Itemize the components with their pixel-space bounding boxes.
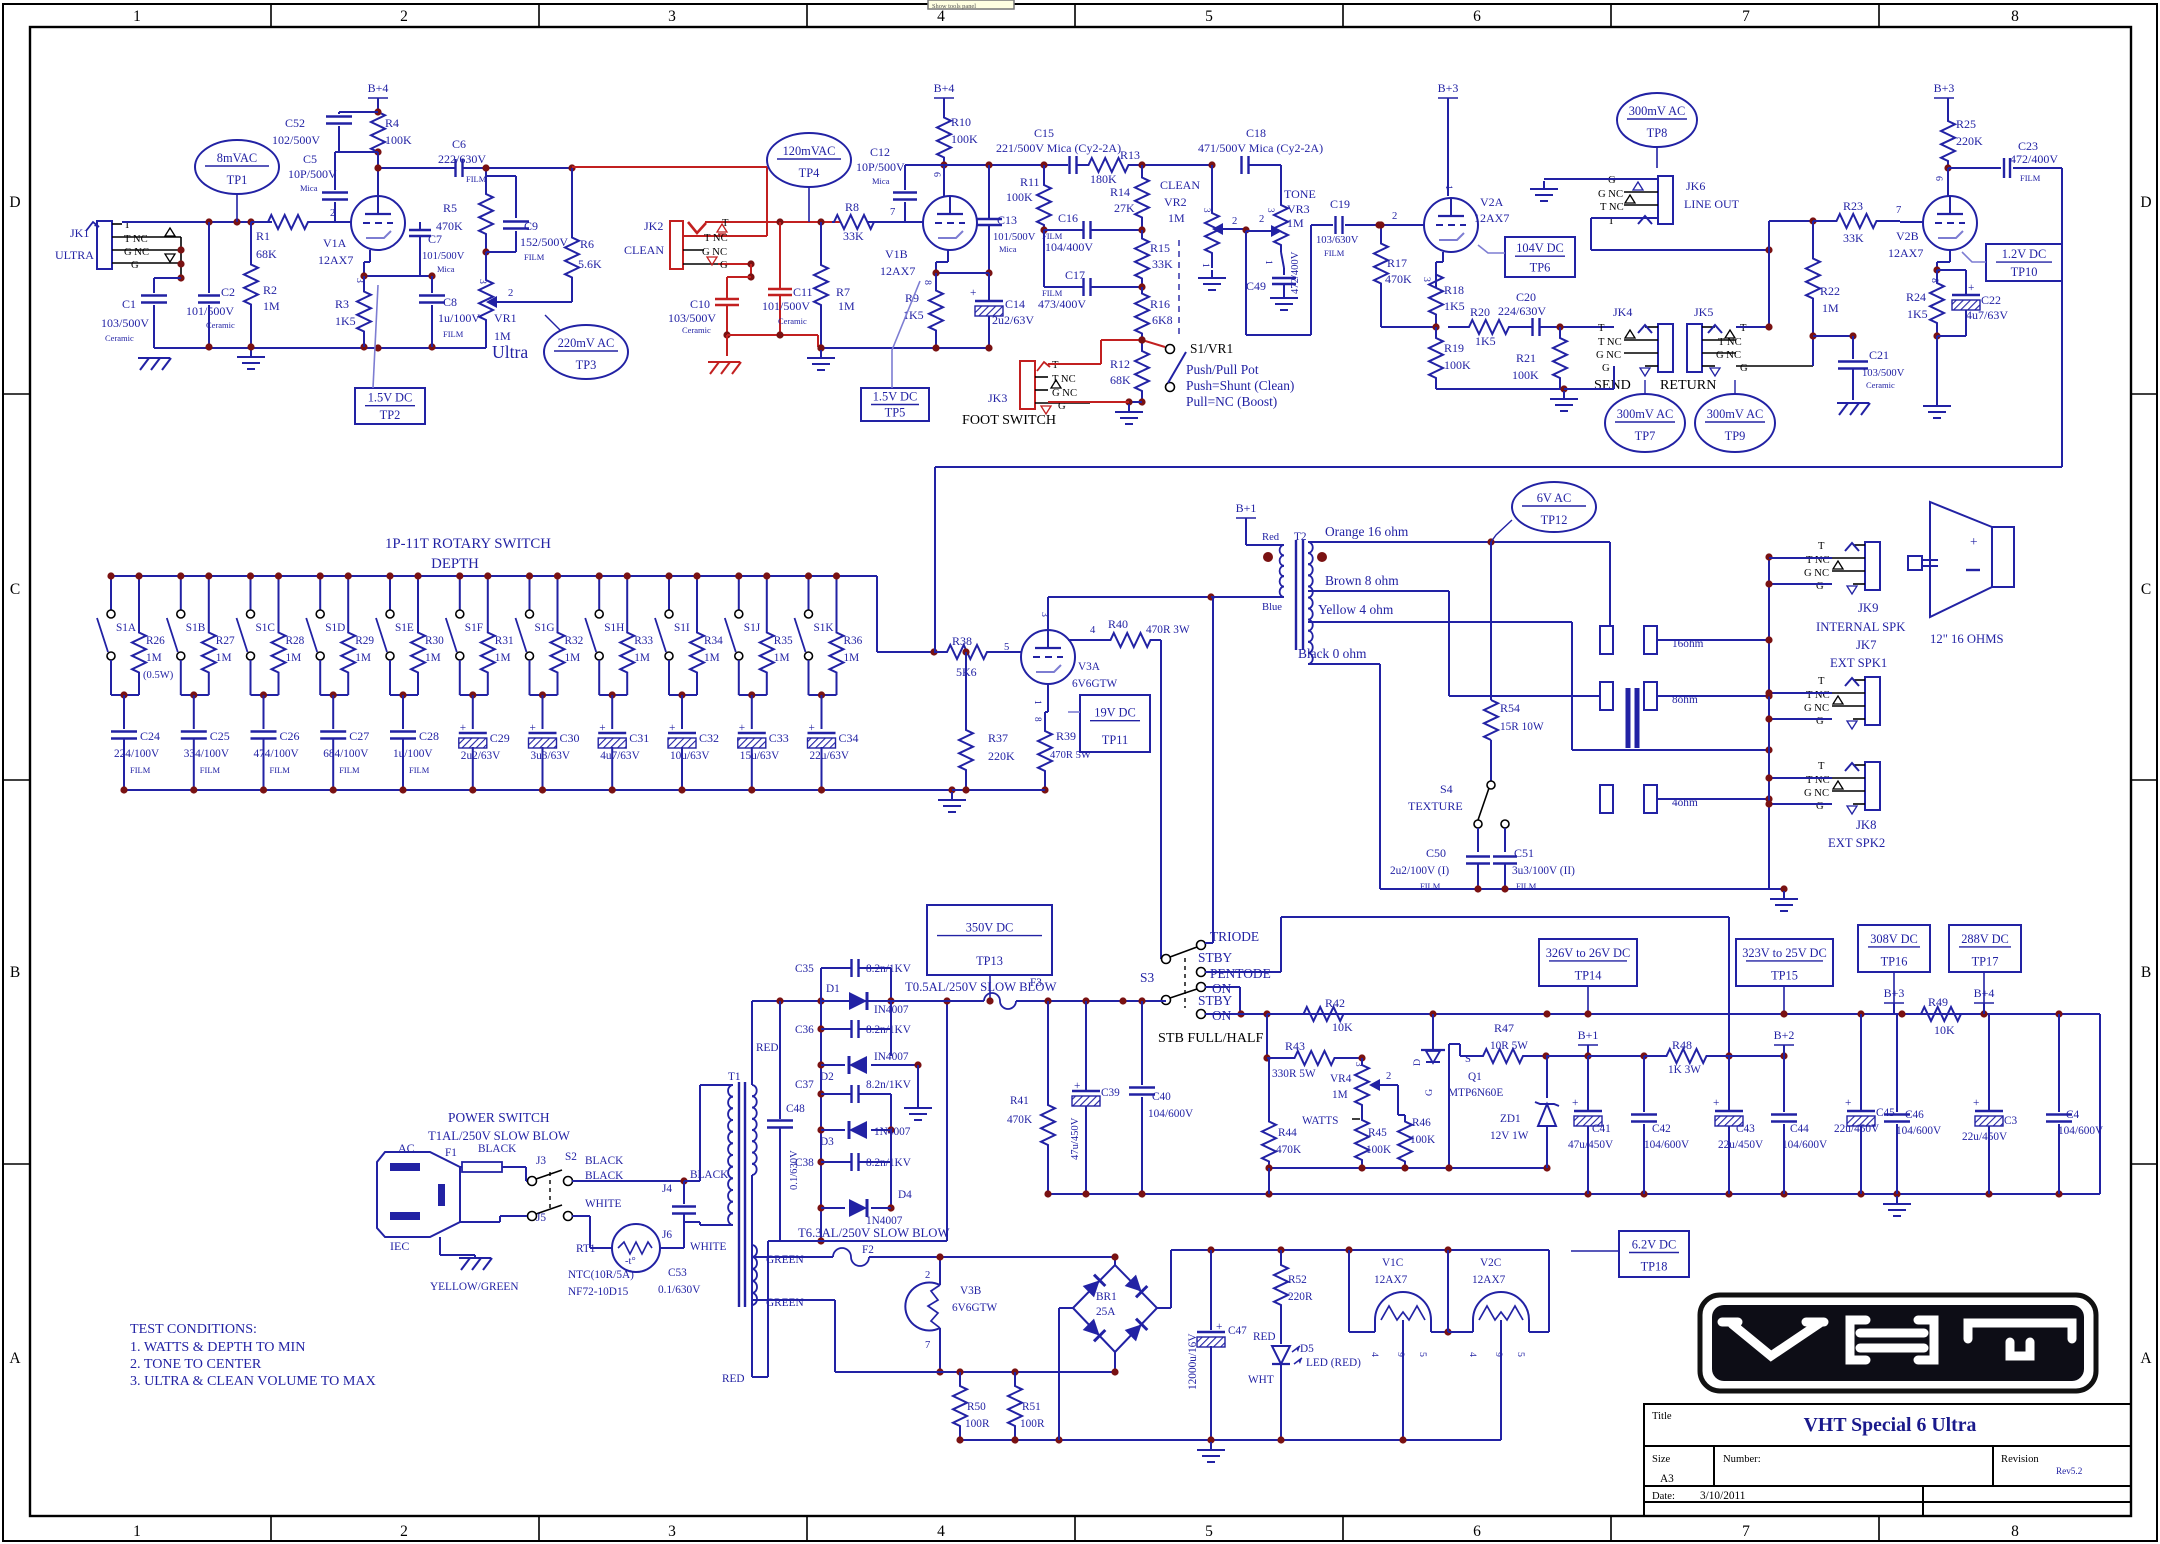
- svg-text:R36: R36: [844, 635, 863, 647]
- svg-text:TP14: TP14: [1575, 968, 1602, 982]
- svg-text:S1H: S1H: [604, 622, 624, 634]
- svg-text:R37: R37: [988, 731, 1008, 745]
- svg-text:IEC: IEC: [390, 1239, 409, 1253]
- svg-text:3: 3: [668, 1523, 676, 1540]
- svg-text:Revision: Revision: [2001, 1454, 2039, 1465]
- svg-text:R43: R43: [1285, 1039, 1305, 1053]
- svg-text:101/500V: 101/500V: [762, 299, 810, 313]
- svg-text:V1A: V1A: [323, 236, 347, 250]
- svg-text:10K: 10K: [1934, 1023, 1955, 1037]
- svg-text:C35: C35: [795, 963, 814, 975]
- svg-text:FILM: FILM: [443, 329, 464, 339]
- svg-text:R31: R31: [495, 635, 514, 647]
- svg-text:C17: C17: [1065, 268, 1085, 282]
- svg-text:C43: C43: [1736, 1123, 1755, 1135]
- svg-text:C40: C40: [1152, 1091, 1171, 1103]
- svg-text:RED: RED: [1253, 1331, 1276, 1343]
- svg-text:+: +: [1973, 1097, 1979, 1109]
- svg-text:2. TONE TO CENTER: 2. TONE TO CENTER: [130, 1356, 262, 1372]
- svg-text:288V DC: 288V DC: [1961, 932, 2009, 946]
- svg-text:B: B: [10, 964, 20, 981]
- svg-text:16ohm: 16ohm: [1672, 638, 1704, 650]
- svg-text:TP12: TP12: [1541, 513, 1568, 527]
- svg-text:LED (RED): LED (RED): [1306, 1357, 1361, 1369]
- svg-text:1: 1: [1201, 263, 1211, 268]
- svg-text:EXT SPK1: EXT SPK1: [1830, 656, 1887, 670]
- svg-text:G: G: [720, 260, 728, 271]
- svg-text:C25: C25: [210, 729, 230, 743]
- svg-text:R20: R20: [1470, 305, 1490, 319]
- svg-text:Push=Shunt (Clean): Push=Shunt (Clean): [1186, 378, 1294, 393]
- svg-text:T: T: [1818, 761, 1825, 772]
- svg-text:R16: R16: [1150, 297, 1170, 311]
- svg-text:103/500V: 103/500V: [101, 316, 149, 330]
- svg-text:Push/Pull Pot: Push/Pull Pot: [1186, 362, 1259, 377]
- svg-text:5: 5: [1205, 8, 1213, 25]
- svg-text:25A: 25A: [1096, 1306, 1116, 1318]
- svg-text:R22: R22: [1820, 284, 1840, 298]
- svg-text:T NC: T NC: [704, 233, 728, 244]
- svg-text:G NC: G NC: [1598, 189, 1623, 200]
- svg-text:G: G: [1608, 175, 1616, 186]
- svg-text:Pull=NC (Boost): Pull=NC (Boost): [1186, 394, 1277, 409]
- svg-text:C8: C8: [443, 295, 457, 309]
- svg-text:A: A: [9, 1350, 21, 1367]
- svg-text:103/630V: 103/630V: [1316, 235, 1359, 246]
- svg-text:6V AC: 6V AC: [1537, 491, 1572, 505]
- svg-text:S1I: S1I: [674, 622, 690, 634]
- svg-text:3: 3: [1266, 208, 1276, 213]
- svg-text:RT1: RT1: [576, 1243, 595, 1255]
- svg-text:WHT: WHT: [1248, 1374, 1274, 1386]
- svg-text:F3: F3: [1030, 977, 1042, 989]
- svg-text:C31: C31: [629, 731, 649, 745]
- svg-text:STB FULL/HALF: STB FULL/HALF: [1158, 1030, 1263, 1046]
- svg-text:1P-11T ROTARY SWITCH: 1P-11T ROTARY SWITCH: [385, 536, 551, 552]
- svg-text:B+4: B+4: [934, 81, 955, 95]
- svg-text:FILM: FILM: [2020, 173, 2041, 183]
- svg-text:12" 16 OHMS: 12" 16 OHMS: [1930, 632, 2004, 646]
- svg-text:68K: 68K: [256, 247, 277, 261]
- svg-text:6K8: 6K8: [1152, 313, 1173, 327]
- svg-text:R33: R33: [634, 635, 653, 647]
- svg-text:SEND: SEND: [1594, 377, 1631, 393]
- svg-text:27K: 27K: [1114, 201, 1135, 215]
- svg-text:101/500V: 101/500V: [422, 251, 465, 262]
- svg-text:G NC: G NC: [1052, 388, 1077, 399]
- svg-text:JK9: JK9: [1858, 601, 1878, 615]
- svg-text:C26: C26: [280, 729, 300, 743]
- svg-text:2: 2: [925, 1270, 930, 1281]
- svg-text:EXT SPK2: EXT SPK2: [1828, 836, 1885, 850]
- svg-text:1K 3W: 1K 3W: [1668, 1064, 1701, 1076]
- svg-text:471/500V Mica (Cy2-2A): 471/500V Mica (Cy2-2A): [1198, 141, 1323, 155]
- svg-text:1K5: 1K5: [1907, 307, 1928, 321]
- svg-text:5: 5: [1515, 1352, 1526, 1357]
- svg-text:ON: ON: [1212, 1008, 1232, 1023]
- svg-text:104/400V: 104/400V: [1045, 240, 1093, 254]
- svg-text:R3: R3: [335, 297, 349, 311]
- svg-text:C30: C30: [560, 731, 580, 745]
- svg-text:102/500V: 102/500V: [272, 133, 320, 147]
- svg-text:FILM: FILM: [200, 765, 221, 775]
- svg-text:C36: C36: [795, 1024, 814, 1036]
- svg-text:C41: C41: [1592, 1123, 1611, 1135]
- svg-text:C39: C39: [1101, 1087, 1120, 1099]
- svg-text:3: 3: [1354, 1062, 1364, 1067]
- svg-text:+: +: [1968, 282, 1974, 294]
- svg-text:D3: D3: [820, 1136, 834, 1148]
- svg-text:1M: 1M: [146, 652, 162, 664]
- svg-text:1: 1: [133, 1523, 141, 1540]
- svg-text:T: T: [1818, 541, 1825, 552]
- svg-text:Title: Title: [1652, 1411, 1672, 1422]
- svg-text:R17: R17: [1387, 256, 1407, 270]
- svg-text:FILM: FILM: [524, 252, 545, 262]
- svg-text:DEPTH: DEPTH: [431, 556, 479, 572]
- svg-text:10R 5W: 10R 5W: [1490, 1040, 1528, 1052]
- svg-text:C51: C51: [1514, 846, 1534, 860]
- svg-text:RETURN: RETURN: [1660, 377, 1716, 393]
- svg-text:472/400V: 472/400V: [2010, 152, 2058, 166]
- svg-text:180K: 180K: [1090, 172, 1117, 186]
- svg-text:D: D: [2140, 194, 2151, 211]
- svg-text:47u/450V: 47u/450V: [1568, 1139, 1614, 1151]
- svg-text:9: 9: [1395, 1352, 1406, 1357]
- svg-text:G NC: G NC: [124, 247, 149, 258]
- svg-text:V2A: V2A: [1480, 195, 1504, 209]
- svg-text:2: 2: [400, 8, 408, 25]
- svg-text:C24: C24: [140, 729, 160, 743]
- svg-text:Mica: Mica: [437, 264, 455, 274]
- svg-text:POWER SWITCH: POWER SWITCH: [448, 1110, 550, 1125]
- svg-text:+: +: [599, 722, 605, 734]
- svg-text:Black 0 ohm: Black 0 ohm: [1298, 646, 1367, 661]
- svg-text:100R: 100R: [1020, 1418, 1045, 1430]
- svg-text:C47: C47: [1228, 1325, 1247, 1337]
- svg-text:T: T: [1598, 323, 1605, 334]
- svg-text:8: 8: [2011, 8, 2019, 25]
- svg-text:S4: S4: [1440, 782, 1453, 796]
- svg-text:1: 1: [133, 8, 141, 25]
- svg-text:Ceramic: Ceramic: [1866, 380, 1895, 390]
- svg-text:S1D: S1D: [325, 622, 345, 634]
- svg-text:C52: C52: [285, 116, 305, 130]
- svg-text:Ceramic: Ceramic: [206, 320, 235, 330]
- svg-text:1K5: 1K5: [1475, 334, 1496, 348]
- svg-text:2: 2: [1386, 1071, 1391, 1082]
- svg-text:R25: R25: [1956, 117, 1976, 131]
- svg-text:1M: 1M: [1332, 1089, 1348, 1101]
- svg-text:T NC: T NC: [1598, 337, 1622, 348]
- svg-text:C18: C18: [1246, 126, 1266, 140]
- svg-text:R10: R10: [951, 115, 971, 129]
- svg-text:1. WATTS & DEPTH TO MIN: 1. WATTS & DEPTH TO MIN: [130, 1339, 305, 1355]
- svg-text:1M: 1M: [1287, 216, 1304, 230]
- svg-text:8: 8: [922, 280, 933, 285]
- svg-text:T: T: [722, 218, 729, 229]
- svg-text:D4: D4: [898, 1189, 912, 1201]
- svg-text:1: 1: [1264, 260, 1274, 265]
- svg-text:R45: R45: [1368, 1127, 1387, 1139]
- svg-text:15R 10W: 15R 10W: [1500, 721, 1544, 733]
- svg-text:470K: 470K: [1276, 1144, 1302, 1156]
- svg-text:R42: R42: [1325, 996, 1345, 1010]
- svg-text:Number:: Number:: [1723, 1454, 1761, 1465]
- svg-text:6: 6: [1473, 8, 1481, 25]
- svg-text:1u/100V: 1u/100V: [393, 748, 433, 760]
- svg-text:R51: R51: [1022, 1401, 1041, 1413]
- svg-text:100K: 100K: [1006, 190, 1033, 204]
- svg-text:2u2/63V: 2u2/63V: [992, 313, 1034, 327]
- svg-text:V2B: V2B: [1896, 229, 1919, 243]
- svg-text:1M: 1M: [355, 652, 371, 664]
- svg-text:INTERNAL SPK: INTERNAL SPK: [1816, 620, 1906, 634]
- svg-text:4: 4: [937, 8, 945, 25]
- svg-text:1M: 1M: [216, 652, 232, 664]
- svg-text:300mV AC: 300mV AC: [1629, 104, 1686, 118]
- svg-text:C42: C42: [1652, 1123, 1671, 1135]
- svg-text:C11: C11: [793, 285, 813, 299]
- svg-text:220K: 220K: [988, 749, 1015, 763]
- svg-text:F2: F2: [862, 1244, 874, 1256]
- svg-text:TP6: TP6: [1530, 260, 1551, 274]
- svg-text:221/500V Mica (Cy2-2A): 221/500V Mica (Cy2-2A): [996, 141, 1121, 155]
- svg-text:300mV AC: 300mV AC: [1617, 407, 1674, 421]
- svg-text:5: 5: [1205, 1523, 1213, 1540]
- svg-text:T NC: T NC: [1600, 202, 1624, 213]
- svg-text:CLEAN: CLEAN: [624, 243, 664, 257]
- svg-text:IN4007: IN4007: [874, 1051, 909, 1063]
- svg-text:S1K: S1K: [814, 622, 835, 634]
- svg-text:470R 3W: 470R 3W: [1146, 624, 1190, 636]
- svg-text:Blue: Blue: [1262, 602, 1282, 613]
- svg-text:3u3/100V (II): 3u3/100V (II): [1512, 865, 1575, 877]
- svg-text:GREEN: GREEN: [766, 1254, 804, 1266]
- svg-text:J4: J4: [662, 1183, 672, 1195]
- svg-text:G NC: G NC: [1716, 350, 1741, 361]
- svg-text:2u2/100V (I): 2u2/100V (I): [1390, 865, 1449, 877]
- svg-text:C5: C5: [303, 152, 317, 166]
- svg-text:R15: R15: [1150, 241, 1170, 255]
- svg-text:C45: C45: [1876, 1107, 1895, 1119]
- svg-text:1.2V DC: 1.2V DC: [2002, 247, 2047, 261]
- svg-text:3: 3: [1202, 208, 1212, 213]
- svg-text:TP13: TP13: [976, 954, 1003, 968]
- svg-text:WHITE: WHITE: [585, 1198, 621, 1210]
- svg-text:BLACK: BLACK: [690, 1169, 729, 1181]
- svg-text:B+3: B+3: [1438, 81, 1459, 95]
- svg-text:+: +: [809, 722, 815, 734]
- svg-text:0.1/630V: 0.1/630V: [789, 1150, 800, 1190]
- svg-text:C33: C33: [769, 731, 789, 745]
- svg-text:FOOT SWITCH: FOOT SWITCH: [962, 412, 1056, 428]
- svg-text:R46: R46: [1412, 1117, 1431, 1129]
- svg-text:2: 2: [400, 1523, 408, 1540]
- svg-text:1.5V DC: 1.5V DC: [873, 390, 918, 404]
- svg-text:R38: R38: [952, 634, 972, 648]
- svg-text:220mV AC: 220mV AC: [558, 336, 615, 350]
- svg-text:10P/500V: 10P/500V: [288, 167, 337, 181]
- svg-text:G NC: G NC: [1804, 703, 1829, 714]
- svg-text:C2: C2: [221, 285, 235, 299]
- svg-text:8: 8: [1033, 717, 1043, 722]
- svg-text:100R: 100R: [965, 1418, 990, 1430]
- svg-text:TP10: TP10: [2011, 265, 2038, 279]
- svg-text:12AX7: 12AX7: [1888, 246, 1923, 260]
- svg-text:Brown 8 ohm: Brown 8 ohm: [1325, 573, 1399, 588]
- svg-text:+: +: [1572, 1097, 1578, 1109]
- svg-text:R9: R9: [905, 291, 919, 305]
- svg-text:6.2V DC: 6.2V DC: [1632, 1238, 1677, 1252]
- svg-text:2: 2: [1259, 214, 1264, 225]
- svg-text:2: 2: [330, 208, 335, 219]
- svg-text:8: 8: [2011, 1523, 2019, 1540]
- svg-text:FILM: FILM: [466, 174, 487, 184]
- svg-text:R27: R27: [216, 635, 235, 647]
- svg-text:S2: S2: [565, 1151, 577, 1163]
- svg-text:6: 6: [1933, 176, 1944, 181]
- svg-text:8mVAC: 8mVAC: [217, 151, 257, 165]
- svg-text:1M: 1M: [565, 652, 581, 664]
- svg-text:Ultra: Ultra: [492, 342, 528, 362]
- svg-text:Mica: Mica: [872, 176, 890, 186]
- svg-text:TP5: TP5: [885, 405, 906, 419]
- svg-text:C49: C49: [1246, 279, 1266, 293]
- svg-text:FILM: FILM: [1324, 248, 1345, 258]
- svg-text:+: +: [970, 287, 976, 299]
- svg-text:1M: 1M: [263, 299, 280, 313]
- svg-text:PENTODE: PENTODE: [1210, 966, 1271, 981]
- svg-text:S3: S3: [1140, 970, 1154, 985]
- svg-text:C20: C20: [1516, 290, 1536, 304]
- svg-text:R24: R24: [1906, 290, 1926, 304]
- svg-text:6V6GTW: 6V6GTW: [952, 1302, 998, 1314]
- svg-text:104/600V: 104/600V: [1782, 1139, 1828, 1151]
- svg-text:100K: 100K: [1444, 358, 1471, 372]
- svg-text:B+1: B+1: [1236, 501, 1257, 515]
- svg-text:+: +: [1845, 1097, 1851, 1109]
- svg-text:4: 4: [1467, 1352, 1478, 1357]
- svg-text:12000u/16V: 12000u/16V: [1187, 1333, 1199, 1390]
- svg-text:R28: R28: [286, 635, 305, 647]
- svg-text:47u/450V: 47u/450V: [1070, 1117, 1081, 1160]
- svg-text:C53: C53: [668, 1267, 687, 1279]
- svg-text:1u/100V: 1u/100V: [438, 311, 480, 325]
- svg-text:4: 4: [937, 1523, 945, 1540]
- svg-text:1M: 1M: [838, 299, 855, 313]
- svg-text:Red: Red: [1262, 532, 1280, 543]
- svg-text:T NC: T NC: [1806, 775, 1830, 786]
- svg-text:S1A: S1A: [116, 622, 137, 634]
- svg-text:G: G: [131, 260, 139, 271]
- svg-text:C37: C37: [795, 1079, 814, 1091]
- svg-text:300mV AC: 300mV AC: [1707, 407, 1764, 421]
- svg-text:R29: R29: [355, 635, 374, 647]
- svg-text:RED: RED: [722, 1373, 745, 1385]
- svg-text:C: C: [10, 581, 20, 598]
- svg-text:3: 3: [1421, 277, 1432, 282]
- svg-text:G: G: [1816, 581, 1824, 592]
- svg-text:101/500V: 101/500V: [993, 232, 1036, 243]
- svg-text:3: 3: [668, 8, 676, 25]
- svg-text:104/600V: 104/600V: [1896, 1125, 1942, 1137]
- svg-text:TP3: TP3: [576, 358, 597, 372]
- svg-text:Ceramic: Ceramic: [682, 325, 711, 335]
- svg-text:33K: 33K: [1152, 257, 1173, 271]
- svg-text:C46: C46: [1905, 1109, 1924, 1121]
- svg-text:BLACK: BLACK: [478, 1143, 517, 1155]
- svg-text:R34: R34: [704, 635, 723, 647]
- svg-text:5.6K: 5.6K: [578, 257, 602, 271]
- svg-text:T NC: T NC: [124, 234, 148, 245]
- svg-text:8: 8: [1929, 278, 1940, 283]
- svg-text:350V DC: 350V DC: [966, 921, 1014, 935]
- svg-text:C21: C21: [1869, 348, 1889, 362]
- svg-text:12AX7: 12AX7: [318, 253, 353, 267]
- svg-text:4u7/63V: 4u7/63V: [1966, 308, 2008, 322]
- svg-text:+: +: [1074, 1080, 1080, 1092]
- svg-text:100K: 100K: [1366, 1144, 1392, 1156]
- svg-text:9: 9: [1493, 1352, 1504, 1357]
- svg-text:C16: C16: [1058, 211, 1078, 225]
- svg-text:C34: C34: [839, 731, 859, 745]
- svg-text:R41: R41: [1010, 1095, 1029, 1107]
- svg-text:12AX7: 12AX7: [880, 264, 915, 278]
- svg-text:JK4: JK4: [1613, 305, 1632, 319]
- svg-text:+: +: [530, 722, 536, 734]
- svg-text:T2: T2: [1294, 531, 1307, 543]
- svg-text:D: D: [1412, 1059, 1423, 1066]
- svg-text:BLACK: BLACK: [585, 1155, 624, 1167]
- svg-text:VR2: VR2: [1164, 195, 1187, 209]
- svg-text:6: 6: [1473, 1523, 1481, 1540]
- svg-text:19V DC: 19V DC: [1094, 706, 1135, 720]
- svg-text:12AX7: 12AX7: [1374, 1274, 1408, 1286]
- svg-text:S1C: S1C: [256, 622, 275, 634]
- svg-text:12AX7: 12AX7: [1472, 1274, 1506, 1286]
- svg-text:103/500V: 103/500V: [1862, 368, 1905, 379]
- svg-text:7: 7: [890, 207, 895, 218]
- svg-text:R50: R50: [967, 1401, 986, 1413]
- svg-text:12V 1W: 12V 1W: [1490, 1130, 1529, 1142]
- svg-text:TP15: TP15: [1771, 968, 1798, 982]
- svg-text:C14: C14: [1005, 297, 1025, 311]
- svg-text:C12: C12: [870, 145, 890, 159]
- svg-text:WHITE: WHITE: [690, 1241, 726, 1253]
- svg-text:TP11: TP11: [1102, 733, 1128, 747]
- svg-text:R19: R19: [1444, 341, 1464, 355]
- svg-text:472/400V: 472/400V: [1290, 251, 1301, 294]
- svg-text:6: 6: [931, 172, 942, 177]
- svg-text:323V to 25V DC: 323V to 25V DC: [1742, 946, 1827, 960]
- svg-text:Ceramic: Ceramic: [778, 316, 807, 326]
- svg-text:R23: R23: [1843, 199, 1863, 213]
- svg-text:474/100V: 474/100V: [254, 748, 300, 760]
- svg-text:10P/500V: 10P/500V: [856, 160, 905, 174]
- svg-text:R12: R12: [1110, 357, 1130, 371]
- svg-text:C50: C50: [1426, 846, 1446, 860]
- svg-text:CLEAN: CLEAN: [1160, 178, 1200, 192]
- svg-text:V1C: V1C: [1382, 1257, 1403, 1269]
- svg-text:101/500V: 101/500V: [186, 304, 234, 318]
- svg-text:JK5: JK5: [1694, 305, 1713, 319]
- svg-text:D: D: [9, 194, 20, 211]
- svg-text:JK7: JK7: [1856, 638, 1876, 652]
- svg-text:STBY: STBY: [1198, 950, 1233, 965]
- svg-text:TP9: TP9: [1725, 429, 1746, 443]
- svg-text:224/100V: 224/100V: [114, 748, 160, 760]
